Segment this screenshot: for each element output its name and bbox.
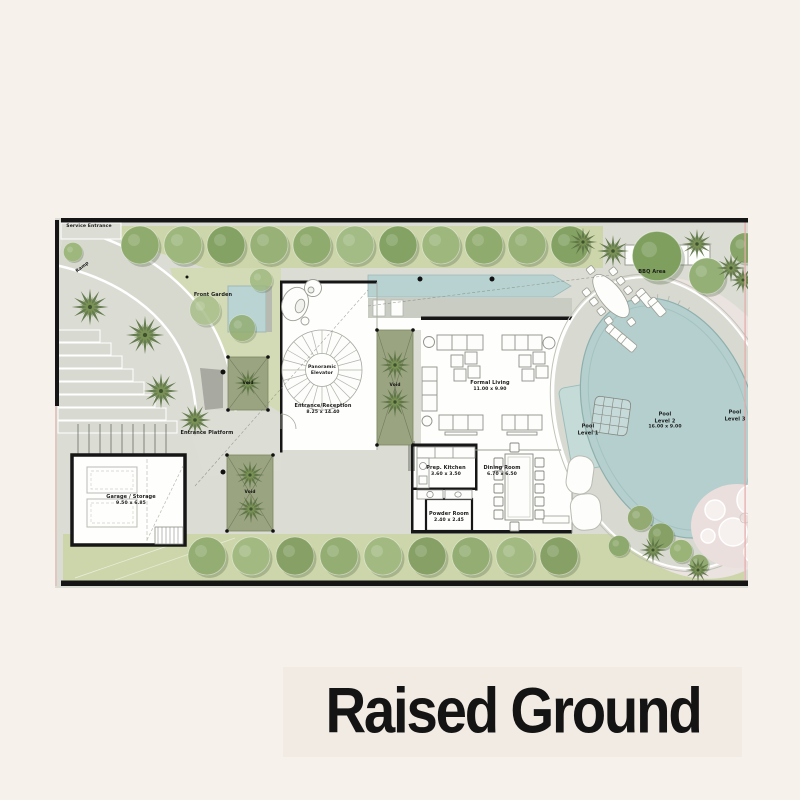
room-dims: 11.00 x 9.90 bbox=[470, 386, 509, 392]
room-level: Level 3 bbox=[725, 416, 746, 423]
room-name: Prep. Kitchen bbox=[426, 465, 466, 472]
room-name: Garage / Storage bbox=[106, 494, 155, 501]
label-service-entrance: Service Entrance bbox=[66, 224, 111, 230]
label-void-3: Void bbox=[245, 490, 256, 496]
label-pool-level-1: Pool Level 1 bbox=[578, 424, 599, 437]
title-strip: Raised Ground bbox=[283, 667, 742, 757]
label-panoramic-elevator: Panoramic Elevator bbox=[305, 365, 339, 377]
label-entrance-platform: Entrance Platform bbox=[181, 430, 234, 437]
label-formal-living: Formal Living 11.00 x 9.90 bbox=[470, 380, 509, 392]
label-prep-kitchen: Prep. Kitchen 3.60 x 3.50 bbox=[426, 465, 466, 477]
room-dims: 16.00 x 9.00 bbox=[648, 425, 681, 431]
room-name: Powder Room bbox=[429, 511, 469, 518]
room-dims: 6.70 x 6.50 bbox=[483, 471, 520, 477]
floor-plan-image: Service Entrance Ramp Front Garden Panor… bbox=[55, 218, 748, 588]
label-pool-level-3: Pool Level 3 bbox=[725, 410, 746, 423]
room-dims: 2.40 x 2.45 bbox=[429, 517, 469, 523]
tree-row-bottom bbox=[188, 537, 581, 578]
label-dining-room: Dining Room 6.70 x 6.50 bbox=[483, 465, 520, 477]
room-dims: 9.50 x 6.85 bbox=[106, 500, 155, 506]
label-powder-room: Powder Room 2.40 x 2.45 bbox=[429, 511, 469, 523]
label-entrance-reception: Entrance/Reception 8.25 x 14.40 bbox=[294, 403, 351, 415]
room-dims: 3.60 x 3.50 bbox=[426, 471, 466, 477]
room-level: Level 1 bbox=[578, 430, 599, 437]
label-front-garden: Front Garden bbox=[194, 292, 232, 299]
label-bbq-area: BBQ Area bbox=[638, 269, 666, 276]
label-garage: Garage / Storage 9.50 x 6.85 bbox=[106, 494, 155, 506]
label-void-2: Void bbox=[243, 381, 254, 387]
room-name: Entrance/Reception bbox=[294, 403, 351, 410]
room-name: Dining Room bbox=[483, 465, 520, 472]
label-void-1: Void bbox=[390, 383, 401, 389]
floor-title: Raised Ground bbox=[325, 679, 700, 743]
tree-row-top bbox=[121, 226, 592, 267]
label-pool-level-2: Pool Level 2 16.00 x 9.00 bbox=[648, 412, 681, 431]
room-name: Formal Living bbox=[470, 380, 509, 387]
room-dims: 8.25 x 14.40 bbox=[294, 409, 351, 415]
